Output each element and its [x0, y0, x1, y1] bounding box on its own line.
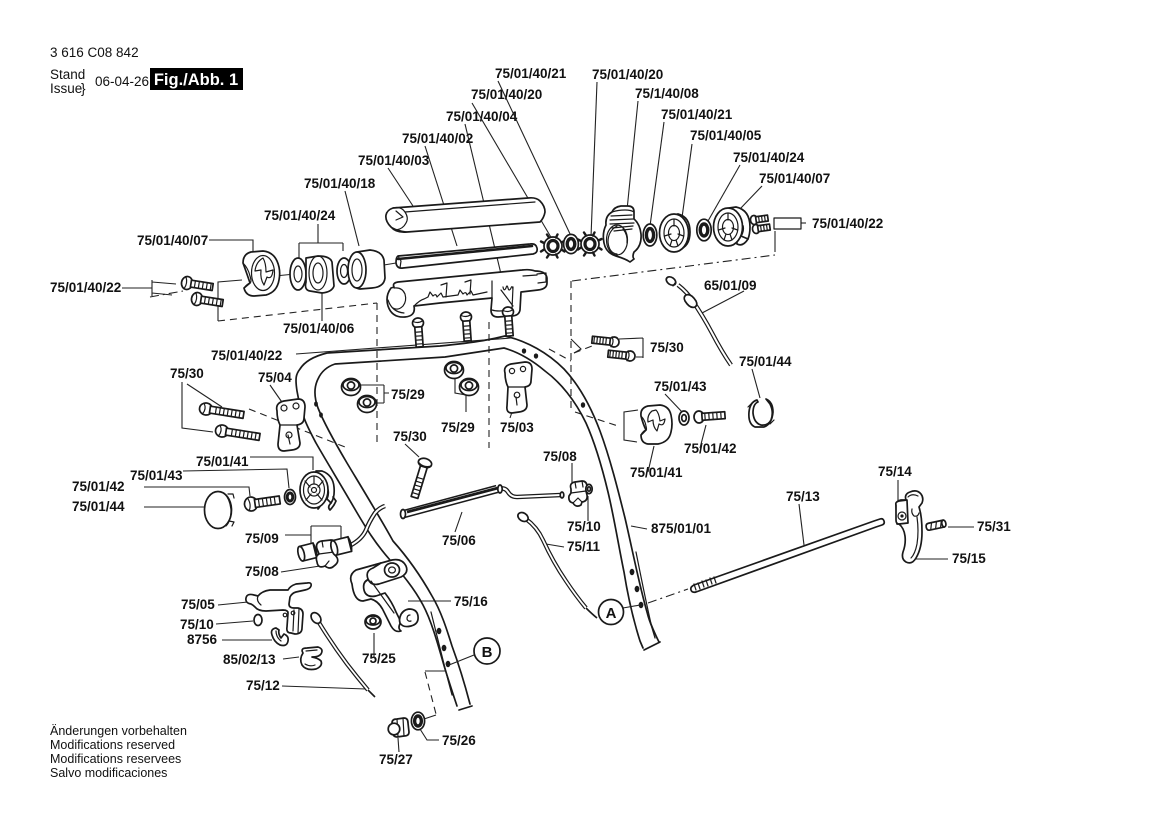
svg-text:Fig./Abb. 1: Fig./Abb. 1: [154, 71, 238, 89]
svg-text:75/30: 75/30: [170, 366, 204, 381]
svg-text:75/01/40/07: 75/01/40/07: [137, 233, 208, 248]
svg-text:75/01/40/21: 75/01/40/21: [495, 66, 567, 81]
svg-text:75/05: 75/05: [181, 597, 215, 612]
svg-text:75/27: 75/27: [379, 752, 413, 767]
svg-text:75/08: 75/08: [543, 449, 577, 464]
svg-text:75/15: 75/15: [952, 551, 986, 566]
svg-text:Modifications reserved: Modifications reserved: [50, 738, 175, 752]
svg-text:75/01/43: 75/01/43: [654, 379, 707, 394]
svg-text:875/01/01: 875/01/01: [651, 521, 712, 536]
svg-text:75/10: 75/10: [180, 617, 214, 632]
svg-text:75/01/41: 75/01/41: [196, 454, 249, 469]
svg-text:75/06: 75/06: [442, 533, 476, 548]
svg-text:75/01/40/18: 75/01/40/18: [304, 176, 376, 191]
svg-text:75/01/40/24: 75/01/40/24: [733, 150, 805, 165]
svg-text:75/04: 75/04: [258, 370, 292, 385]
svg-text:75/31: 75/31: [977, 519, 1011, 534]
svg-text:75/01/40/21: 75/01/40/21: [661, 107, 733, 122]
svg-text:75/01/40/02: 75/01/40/02: [402, 131, 473, 146]
svg-text:75/30: 75/30: [650, 340, 684, 355]
svg-text:75/09: 75/09: [245, 531, 279, 546]
svg-text:75/26: 75/26: [442, 733, 476, 748]
svg-text:75/13: 75/13: [786, 489, 820, 504]
svg-text:A: A: [606, 605, 617, 622]
svg-text:Stand: Stand: [50, 67, 85, 82]
svg-text:Salvo modificaciones: Salvo modificaciones: [50, 766, 167, 780]
svg-text:75/01/40/07: 75/01/40/07: [759, 171, 830, 186]
svg-text:75/11: 75/11: [567, 539, 601, 554]
svg-text:75/01/44: 75/01/44: [72, 499, 125, 514]
svg-text:65/01/09: 65/01/09: [704, 278, 757, 293]
svg-text:75/03: 75/03: [500, 420, 534, 435]
svg-text:3 616 C08 842: 3 616 C08 842: [50, 45, 139, 60]
svg-text:Modifications reservees: Modifications reservees: [50, 752, 181, 766]
svg-text:75/30: 75/30: [393, 429, 427, 444]
svg-text:75/01/40/24: 75/01/40/24: [264, 208, 336, 223]
svg-text:}: }: [81, 81, 86, 96]
svg-text:75/14: 75/14: [878, 464, 912, 479]
svg-text:75/01/43: 75/01/43: [130, 468, 183, 483]
svg-text:75/01/40/05: 75/01/40/05: [690, 128, 762, 143]
svg-text:75/01/41: 75/01/41: [630, 465, 683, 480]
svg-text:Änderungen vorbehalten: Änderungen vorbehalten: [50, 724, 187, 738]
svg-text:06-04-26: 06-04-26: [95, 74, 149, 89]
svg-text:75/01/40/22: 75/01/40/22: [211, 348, 282, 363]
svg-text:75/01/40/20: 75/01/40/20: [592, 67, 663, 82]
svg-text:75/01/40/03: 75/01/40/03: [358, 153, 430, 168]
svg-text:75/10: 75/10: [567, 519, 601, 534]
svg-text:Issue: Issue: [50, 81, 82, 96]
svg-text:75/12: 75/12: [246, 678, 280, 693]
svg-text:75/1/40/08: 75/1/40/08: [635, 86, 699, 101]
svg-text:8756: 8756: [187, 632, 218, 647]
svg-text:75/08: 75/08: [245, 564, 279, 579]
svg-text:75/29: 75/29: [391, 387, 425, 402]
svg-text:75/01/42: 75/01/42: [684, 441, 737, 456]
svg-text:B: B: [482, 644, 493, 661]
svg-text:85/02/13: 85/02/13: [223, 652, 276, 667]
svg-text:75/01/40/04: 75/01/40/04: [446, 109, 518, 124]
svg-text:75/29: 75/29: [441, 420, 475, 435]
svg-text:75/01/42: 75/01/42: [72, 479, 125, 494]
svg-text:75/25: 75/25: [362, 651, 396, 666]
svg-text:75/01/40/22: 75/01/40/22: [50, 280, 121, 295]
svg-text:75/01/40/06: 75/01/40/06: [283, 321, 355, 336]
svg-text:75/01/44: 75/01/44: [739, 354, 792, 369]
svg-text:75/01/40/22: 75/01/40/22: [812, 216, 883, 231]
svg-text:75/16: 75/16: [454, 594, 488, 609]
